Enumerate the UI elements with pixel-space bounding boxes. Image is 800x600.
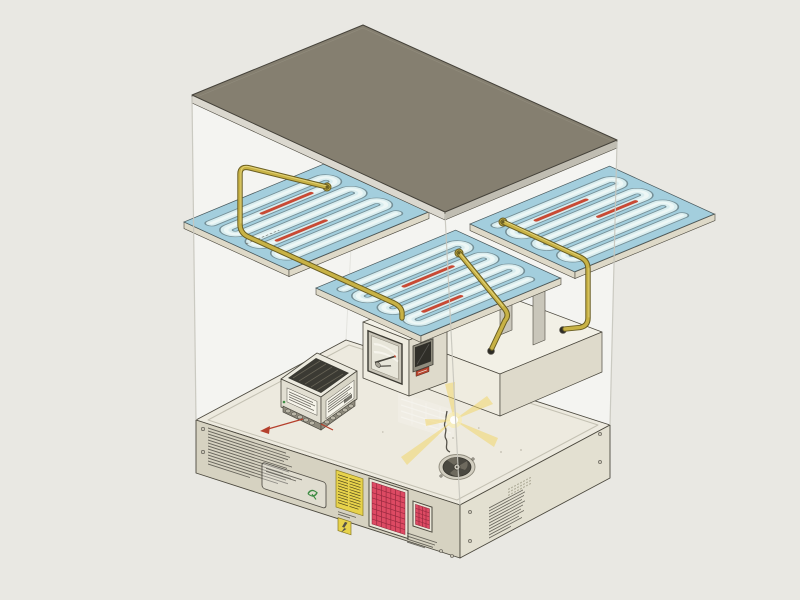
support-slat bbox=[533, 288, 545, 345]
screw bbox=[468, 510, 471, 513]
screw bbox=[598, 432, 601, 435]
screw bbox=[201, 450, 204, 453]
pipe-fitting-bore bbox=[326, 186, 329, 189]
screw bbox=[201, 427, 204, 430]
screw bbox=[598, 460, 601, 463]
screw bbox=[451, 555, 454, 558]
exploded-device-illustration bbox=[0, 0, 800, 600]
pipe-fitting-bore bbox=[502, 221, 505, 224]
psu-green-led bbox=[283, 401, 286, 404]
screw bbox=[468, 539, 471, 542]
screw bbox=[440, 550, 443, 553]
pipe-fitting-bore bbox=[458, 252, 461, 255]
